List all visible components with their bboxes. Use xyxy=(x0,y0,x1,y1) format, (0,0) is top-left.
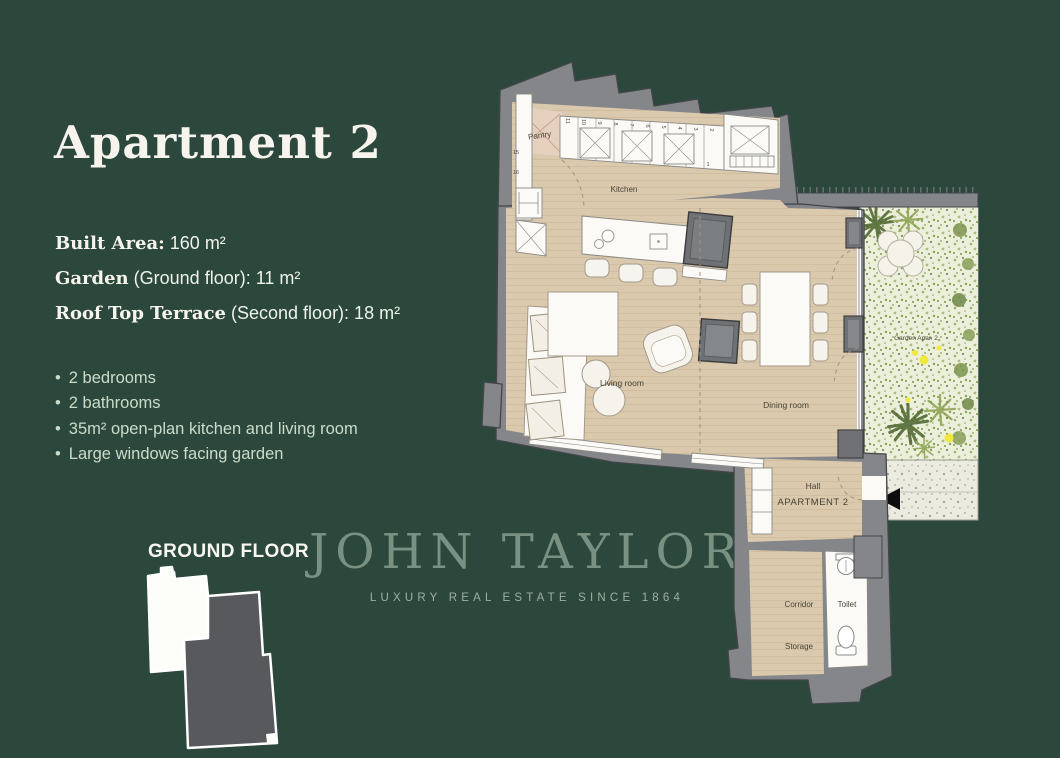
feature-item: •2 bathrooms xyxy=(55,391,358,416)
svg-text:9: 9 xyxy=(596,121,602,124)
svg-text:2: 2 xyxy=(708,128,714,131)
hall-wardrobe xyxy=(752,468,772,534)
apartment-label: APARTMENT 2 xyxy=(778,497,849,508)
garden-area: Garden Apar. 2 xyxy=(859,206,979,484)
column xyxy=(699,319,740,364)
side-table xyxy=(593,384,625,416)
svg-text:1: 1 xyxy=(706,162,709,168)
floor-plan: Garden Apar. 2 xyxy=(472,48,1012,758)
spec-garden: Garden (Ground floor): 11 m² xyxy=(55,261,400,296)
dining-table xyxy=(760,272,810,366)
bullet-icon: • xyxy=(55,394,61,412)
spec-garden-label: Garden xyxy=(55,268,129,289)
garden-label: Garden Apar. 2 xyxy=(894,335,938,342)
spec-terrace-value: (Second floor): 18 m² xyxy=(226,303,400,323)
svg-text:11: 11 xyxy=(564,118,570,124)
spec-terrace-label: Roof Top Terrace xyxy=(55,303,226,324)
feature-item: •35m² open-plan kitchen and living room xyxy=(55,417,358,442)
svg-text:15: 15 xyxy=(513,150,519,156)
garden-wall xyxy=(786,190,978,207)
toilet-label: Toilet xyxy=(838,600,857,609)
spec-garden-value: (Ground floor): 11 m² xyxy=(129,268,301,288)
dining-set xyxy=(742,272,828,366)
svg-text:3: 3 xyxy=(692,127,698,130)
hall-label: Hall xyxy=(806,481,821,491)
corridor-floor xyxy=(749,550,824,676)
coffee-table xyxy=(548,292,618,356)
svg-text:8: 8 xyxy=(612,122,618,125)
spec-list: Built Area: 160 m² Garden (Ground floor)… xyxy=(55,226,400,331)
svg-text:4: 4 xyxy=(676,126,682,129)
svg-text:16: 16 xyxy=(513,170,519,176)
bullet-icon: • xyxy=(55,369,61,387)
dining-room-label: Dining room xyxy=(763,400,809,410)
bullet-icon: • xyxy=(55,445,61,463)
page: { "page": { "background_color": "#2c483c… xyxy=(0,0,1060,756)
feature-list: •2 bedrooms •2 bathrooms •35m² open-plan… xyxy=(55,366,358,467)
kitchen-label: Kitchen xyxy=(611,185,638,194)
keyplan-map xyxy=(138,562,288,752)
hall-right-wall xyxy=(854,536,882,578)
keyplan-notch xyxy=(266,733,276,743)
svg-text:10: 10 xyxy=(580,119,586,125)
keyplan-title: GROUND FLOOR xyxy=(148,541,309,563)
svg-text:6: 6 xyxy=(644,124,650,127)
storage-label: Storage xyxy=(785,642,814,651)
spec-built-area: Built Area: 160 m² xyxy=(55,226,400,261)
svg-text:5: 5 xyxy=(660,125,666,128)
bullet-icon: • xyxy=(55,420,61,438)
feature-item: •2 bedrooms xyxy=(55,366,358,391)
spec-built-area-value: 160 m² xyxy=(165,233,226,253)
spec-terrace: Roof Top Terrace (Second floor): 18 m² xyxy=(55,296,400,331)
living-room-label: Living room xyxy=(600,378,644,388)
svg-text:7: 7 xyxy=(628,123,634,126)
spec-built-area-label: Built Area: xyxy=(55,233,165,254)
page-title: Apartment 2 xyxy=(54,116,382,169)
corridor-label: Corridor xyxy=(785,600,814,609)
fireplace-unit xyxy=(682,212,733,281)
feature-item: •Large windows facing garden xyxy=(55,442,358,467)
